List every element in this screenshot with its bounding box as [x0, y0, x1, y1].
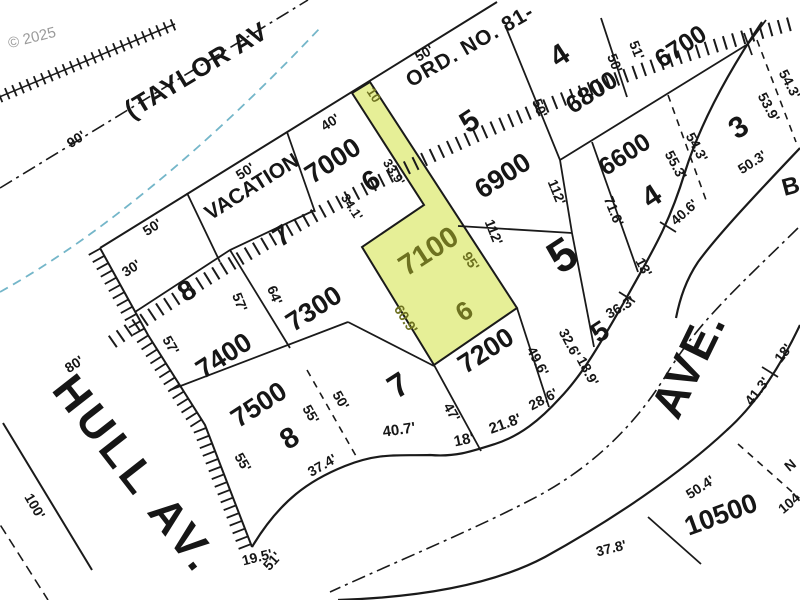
- dim-51: 51': [627, 39, 647, 62]
- block-5-number: 5: [539, 229, 586, 282]
- map-labels: (TAYLOR AVHULL AV.AVE.BVACATIONORD. NO. …: [0, 0, 800, 600]
- dim-55-7500: 55': [300, 402, 322, 425]
- dim-37-8: 37.8': [594, 538, 627, 559]
- taxlot-6900: 6900: [470, 148, 535, 203]
- dim-57-hatch: 57': [160, 333, 182, 356]
- dim-54-3-b: 54.3': [777, 67, 800, 101]
- lot-7-upper: 7: [268, 220, 296, 252]
- lot-6-upper: 6: [357, 165, 385, 197]
- dim-36-3: 36.3': [603, 293, 636, 320]
- taxlot-6800: 6800: [562, 67, 622, 118]
- taxlot-6600: 6600: [595, 129, 655, 180]
- dim-30: 30': [119, 257, 142, 279]
- dim-50-6800w: 50': [530, 97, 550, 120]
- dim-95: 95': [460, 249, 482, 272]
- dim-55-hatch: 55': [232, 450, 254, 473]
- dim-21-8: 21.8': [487, 411, 523, 436]
- street-b-label: B: [780, 173, 800, 201]
- dim-112-east: 112': [546, 177, 569, 206]
- taxlot-7400: 7400: [191, 328, 256, 383]
- dim-53-9: 53.9': [756, 90, 783, 124]
- copyright-label: © 2025: [7, 25, 58, 51]
- dim-49-6: 49.6': [525, 344, 552, 378]
- street-taylor-label: (TAYLOR AV: [120, 17, 272, 123]
- dim-28-6: 28.6': [526, 386, 560, 413]
- dim-90: 90': [64, 128, 87, 150]
- bearing-104-partial: 104: [776, 490, 800, 516]
- dim-34-1: 34.1': [339, 192, 365, 223]
- lot-8-upper: 8: [173, 275, 201, 307]
- lot-4-6800: 4: [545, 39, 575, 73]
- dim-50-3: 50.3': [735, 148, 768, 176]
- lot-4-6600: 4: [637, 180, 667, 214]
- taxlot-7000: 7000: [300, 133, 365, 188]
- lot-7-lower: 7: [381, 366, 414, 404]
- plat-map: (TAYLOR AVHULL AV.AVE.BVACATIONORD. NO. …: [0, 0, 800, 600]
- lot-8-lower: 8: [275, 422, 304, 455]
- dim-33-9: 33.9': [381, 157, 407, 188]
- taxlot-6700: 6700: [651, 21, 711, 72]
- dim-112-west: 112': [483, 217, 506, 246]
- dim-50-4: 50.4': [683, 473, 716, 501]
- lot-5-upper: 5: [455, 105, 485, 139]
- dim-40-7: 40.7': [382, 420, 417, 439]
- lot-3: 3: [724, 111, 754, 145]
- dim-18-curve: 18': [453, 431, 476, 450]
- vacation-label: VACATION: [201, 150, 302, 224]
- dim-50-lot7: 50': [330, 388, 352, 411]
- dim-18-9: 18.9': [575, 354, 602, 388]
- dim-60-9: 60.9': [392, 302, 420, 335]
- street-hull-label: HULL AV.: [45, 367, 227, 582]
- dim-54-3-a: 54.3': [684, 130, 711, 164]
- dim-57-inner: 57': [230, 291, 250, 314]
- dim-13: 13': [633, 255, 654, 278]
- dim-37-4: 37.4': [305, 451, 338, 478]
- dim-71-6: 71.6': [602, 194, 626, 228]
- dim-40: 40': [318, 111, 341, 133]
- taxlot-7200: 7200: [453, 323, 518, 378]
- dim-41-3: 41.3': [742, 375, 772, 408]
- dim-40-6: 40.6': [668, 197, 700, 228]
- dim-50-lot8: 50': [140, 216, 163, 238]
- dim-32-6: 32.6': [557, 326, 584, 360]
- dim-64: 64': [265, 284, 285, 307]
- taxlot-7100: 7100: [394, 222, 464, 281]
- strip-10-label: 10: [365, 85, 384, 104]
- street-ave-label: AVE.: [643, 304, 733, 425]
- taxlot-7300: 7300: [281, 281, 346, 336]
- lot-6-highlight: 6: [451, 296, 477, 326]
- dim-100: 100': [22, 491, 47, 521]
- dim-47: 47': [441, 400, 463, 423]
- dim-55-3: 55.3': [663, 148, 690, 182]
- dim-18-ave: 18': [772, 341, 795, 365]
- bearing-n-partial: N: [782, 456, 799, 473]
